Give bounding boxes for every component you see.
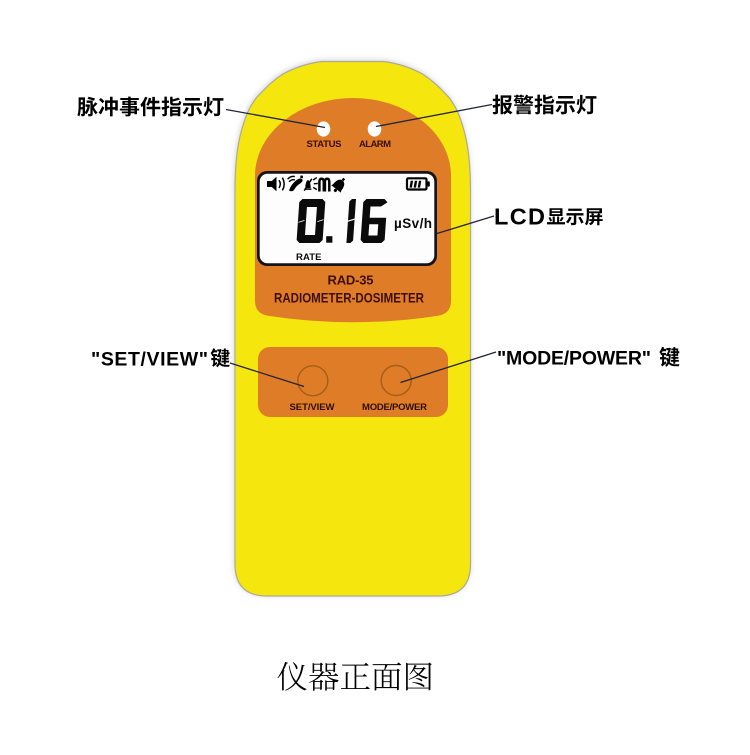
svg-text:STATUS: STATUS (307, 139, 342, 150)
svg-text:"SET/VIEW": "SET/VIEW" (91, 349, 208, 371)
svg-text:"MODE/POWER": "MODE/POWER" (497, 348, 651, 370)
svg-text:RATE: RATE (296, 252, 322, 263)
svg-text:SET/VIEW: SET/VIEW (290, 402, 335, 413)
svg-text:RAD-35: RAD-35 (328, 273, 374, 288)
svg-text:ALARM: ALARM (359, 139, 391, 150)
svg-text:µSv/h: µSv/h (394, 216, 432, 231)
svg-text:RADIOMETER-DOSIMETER: RADIOMETER-DOSIMETER (274, 290, 424, 306)
svg-text:MODE/POWER: MODE/POWER (362, 402, 427, 413)
svg-text:LCD: LCD (494, 204, 545, 230)
